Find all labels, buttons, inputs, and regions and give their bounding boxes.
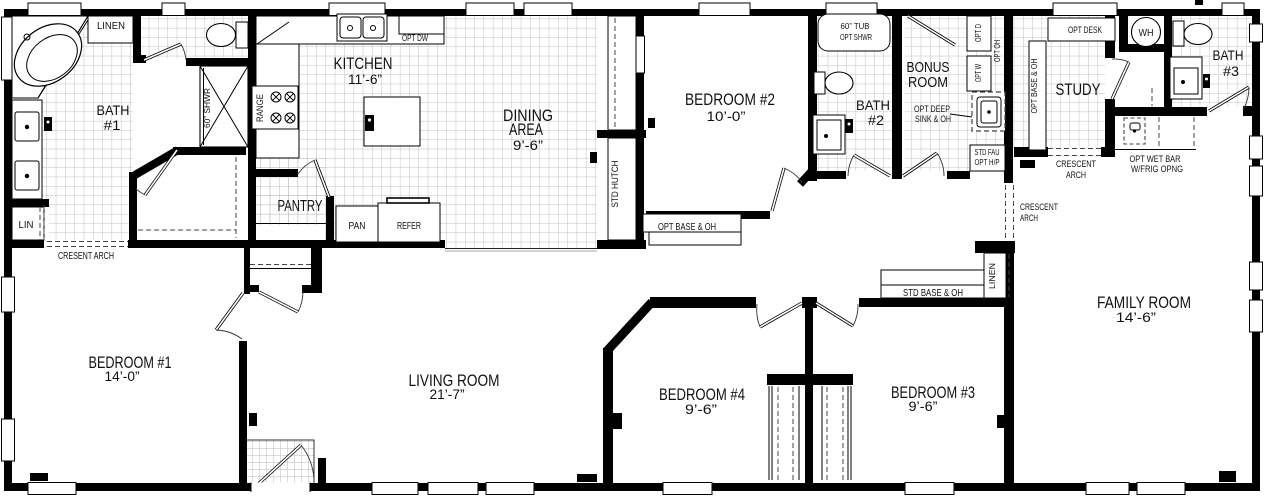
- svg-text:OPT D: OPT D: [973, 24, 983, 42]
- svg-text:11’-6”: 11’-6”: [348, 71, 382, 87]
- svg-text:9’-6”: 9’-6”: [909, 398, 938, 414]
- svg-text:BATH: BATH: [856, 97, 890, 113]
- svg-text:PANTRY: PANTRY: [278, 198, 323, 215]
- svg-text:REFER: REFER: [397, 221, 421, 232]
- svg-text:STUDY: STUDY: [1056, 80, 1101, 99]
- svg-text:14’-0”: 14’-0”: [105, 368, 140, 384]
- svg-text:BATH: BATH: [1213, 47, 1244, 63]
- svg-text:BATH: BATH: [97, 102, 130, 118]
- svg-text:STD BASE & OH: STD BASE & OH: [903, 288, 963, 299]
- svg-text:60” SHWR: 60” SHWR: [202, 88, 212, 128]
- svg-text:ARCH: ARCH: [1020, 213, 1038, 224]
- svg-text:ARCH: ARCH: [1066, 170, 1086, 181]
- svg-text:LINEN: LINEN: [97, 20, 125, 32]
- svg-text:OPT SHWR: OPT SHWR: [840, 32, 872, 42]
- svg-text:BEDROOM #2: BEDROOM #2: [685, 90, 775, 109]
- svg-text:RANGE: RANGE: [255, 94, 266, 122]
- svg-text:STD FAU: STD FAU: [975, 148, 1000, 157]
- svg-text:CRESENT ARCH: CRESENT ARCH: [58, 250, 114, 262]
- svg-text:PAN: PAN: [349, 221, 366, 232]
- svg-text:#2: #2: [868, 112, 884, 128]
- svg-text:STD HUTCH: STD HUTCH: [610, 160, 621, 207]
- svg-text:OPT DESK: OPT DESK: [1068, 25, 1102, 36]
- svg-text:OPT BASE & OH: OPT BASE & OH: [1029, 59, 1039, 114]
- svg-text:CRESCENT: CRESCENT: [1056, 159, 1096, 170]
- svg-text:#3: #3: [1223, 63, 1239, 79]
- svg-text:LIN: LIN: [19, 219, 34, 231]
- svg-text:60” TUB: 60” TUB: [841, 21, 870, 31]
- svg-text:W/FRIG OPNG: W/FRIG OPNG: [1131, 164, 1183, 175]
- svg-text:LINEN: LINEN: [987, 263, 997, 289]
- svg-text:9’-6”: 9’-6”: [685, 401, 717, 417]
- svg-text:14’-6”: 14’-6”: [1116, 309, 1156, 325]
- svg-text:OPT BASE & OH: OPT BASE & OH: [658, 222, 716, 233]
- svg-text:OPT OH: OPT OH: [992, 40, 1002, 62]
- svg-text:10’-0”: 10’-0”: [707, 108, 746, 124]
- svg-text:CRESCENT: CRESCENT: [1020, 202, 1058, 213]
- svg-text:OPT W: OPT W: [973, 64, 983, 82]
- svg-text:SINK & OH: SINK & OH: [915, 114, 951, 125]
- svg-text:#1: #1: [104, 117, 121, 133]
- svg-text:21’-7”: 21’-7”: [430, 386, 465, 402]
- svg-text:OPT DW: OPT DW: [402, 33, 428, 43]
- svg-text:ROOM: ROOM: [908, 74, 948, 91]
- svg-text:9’-6”: 9’-6”: [513, 137, 543, 153]
- svg-text:OPT H/P: OPT H/P: [975, 158, 1000, 167]
- svg-text:WH: WH: [1139, 28, 1154, 39]
